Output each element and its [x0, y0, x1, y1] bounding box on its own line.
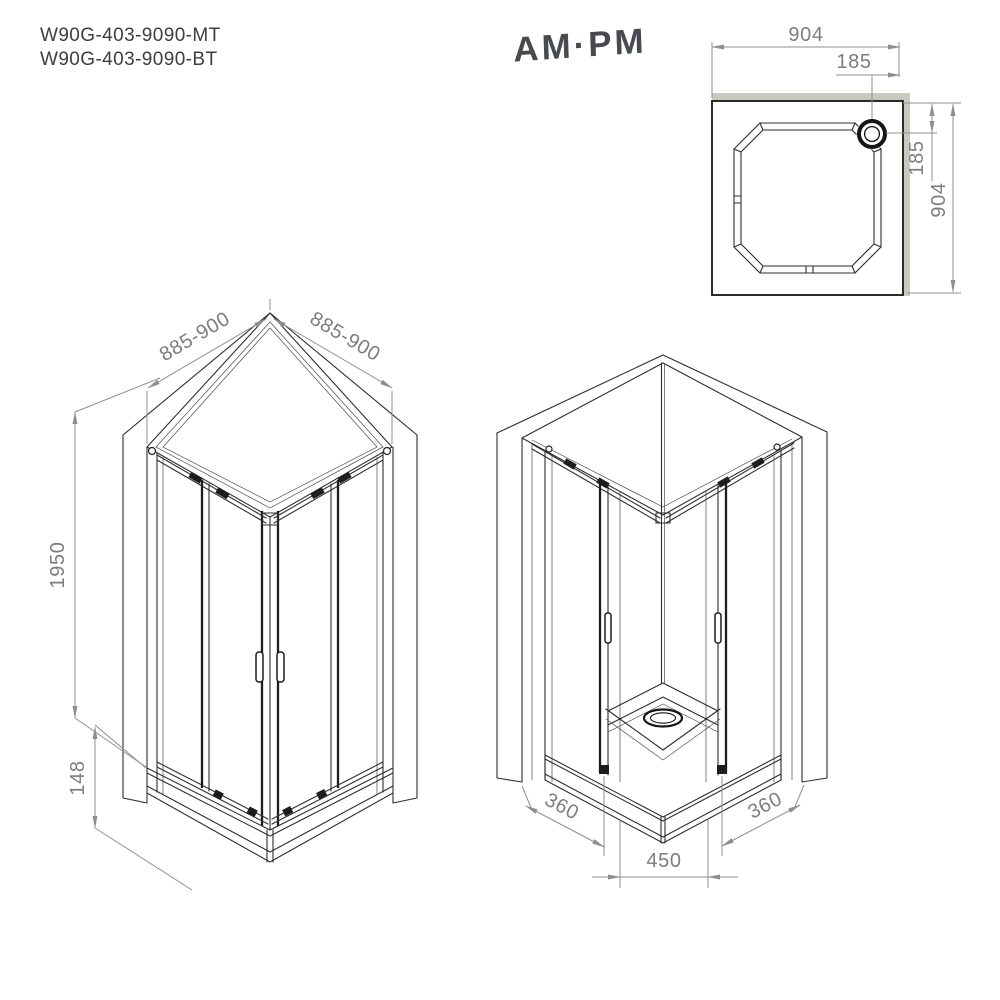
dim-label-tray-depth: 904 [928, 182, 950, 217]
top-view-drawing: 904 185 185 904 [660, 0, 1000, 335]
tray-outline [712, 101, 903, 295]
door-handle-right [277, 652, 284, 682]
model-code-line1: W90G-403-9090-MT [40, 24, 221, 48]
dim-label-tray-height: 148 [67, 760, 89, 795]
dim-label-opening-left: 360 [541, 789, 582, 825]
door-handle-left [605, 613, 611, 643]
enclosure-structure [123, 313, 417, 862]
front-view-dimensions: 885-900 885-900 1950 148 [47, 299, 392, 890]
dim-label-side-right: 885-900 [306, 308, 384, 366]
dim-label-tray-width: 904 [788, 24, 823, 46]
dim-label-entry-width: 450 [646, 850, 681, 872]
dim-label-opening-right: 360 [745, 788, 786, 824]
dim-label-drain-offset-y: 185 [906, 140, 928, 175]
door-handle-left [256, 652, 263, 682]
model-code-line2: W90G-403-9090-BT [40, 48, 221, 72]
front-iso-drawing: 885-900 885-900 1950 148 [30, 295, 480, 970]
corner-iso-drawing: 360 360 450 [480, 330, 960, 1000]
corner-view-dimensions: 360 360 450 [522, 776, 804, 888]
dim-label-height: 1950 [47, 542, 69, 589]
technical-drawing-page: W90G-403-9090-MT W90G-403-9090-BT AM·PM [0, 0, 1000, 1000]
dim-label-drain-offset-x: 185 [836, 51, 871, 73]
drain [644, 710, 682, 727]
model-codes: W90G-403-9090-MT W90G-403-9090-BT [40, 24, 221, 72]
drain [857, 119, 888, 150]
rim-joints [734, 123, 881, 273]
enclosure-structure [497, 355, 827, 843]
door-handle-right [715, 613, 721, 643]
brand-logo: AM·PM [495, 20, 666, 72]
dim-label-side-left: 885-900 [156, 308, 234, 366]
